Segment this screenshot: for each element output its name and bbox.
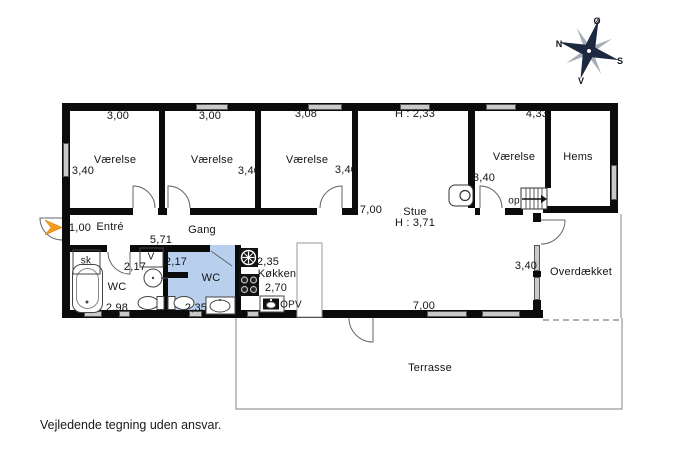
dim-badevaerelse-depth: 2,98 bbox=[106, 302, 128, 314]
door-vaerelse4-arc bbox=[480, 186, 502, 208]
room-label-vaerelse2: Værelse bbox=[191, 154, 233, 166]
dim-vaerelse2-width: 3,00 bbox=[199, 110, 221, 122]
room-label-overdaekket: Overdækket bbox=[550, 266, 612, 278]
room-label-vaerelse1: Værelse bbox=[94, 154, 136, 166]
dim-vaerelse4-width: 4,33 bbox=[526, 108, 548, 120]
room-label-vaerelse4: Værelse bbox=[493, 151, 535, 163]
dishwasher-label: OPV bbox=[280, 300, 302, 311]
compass-north-label: N bbox=[556, 39, 563, 49]
dim-vaerelse3-depth: 3,40 bbox=[335, 164, 357, 176]
room-label-terrasse: Terrasse bbox=[408, 362, 452, 374]
compass-rose: Ø N S V bbox=[543, 5, 635, 97]
room-label-vaerelse3: Værelse bbox=[286, 154, 328, 166]
compass-south-label: S bbox=[617, 56, 623, 66]
dim-stue-width-bottom: 7,00 bbox=[413, 300, 435, 312]
stairs-up-label: op bbox=[508, 196, 520, 207]
dim-vaerelse1-width: 3,00 bbox=[107, 110, 129, 122]
extractor-fan-icon bbox=[239, 248, 258, 267]
dim-vaerelse1-depth: 3,40 bbox=[72, 165, 94, 177]
room-label-gang: Gang bbox=[188, 224, 216, 236]
floor-plan: 3,00 Værelse 3,40 3,00 Værelse 3,40 3,08… bbox=[0, 0, 687, 457]
stairs-icon bbox=[521, 188, 547, 209]
dim-wc-width: 2,17 bbox=[165, 256, 187, 268]
room-label-badevaerelse: WC bbox=[108, 281, 127, 293]
dim-wc-depth: 2,35 bbox=[185, 302, 207, 314]
dim-badevaerelse-width: 2,17 bbox=[124, 261, 146, 273]
door-wc-leaf bbox=[211, 251, 232, 266]
dim-koekken-width: 2,35 bbox=[257, 256, 279, 268]
round-sink-icon bbox=[144, 269, 168, 287]
bathtub-icon bbox=[73, 265, 103, 313]
door-overdaekket-arc bbox=[541, 220, 565, 244]
dim-stue-low-ceiling: H : 2,33 bbox=[395, 108, 435, 120]
washer-label: V bbox=[148, 252, 155, 263]
dim-vaerelse2-depth: 3,40 bbox=[238, 165, 260, 177]
closet-label: sk bbox=[81, 256, 91, 267]
dim-overdaekket-depth: 3,40 bbox=[515, 260, 537, 272]
room-label-entre: Entré bbox=[96, 221, 123, 233]
dim-vaerelse3-width: 3,08 bbox=[295, 108, 317, 120]
wood-stove-icon bbox=[449, 185, 473, 206]
vanity-sink-icon bbox=[206, 297, 235, 314]
compass-west-label: V bbox=[578, 76, 584, 86]
dim-entre: 1,00 bbox=[69, 222, 91, 234]
compass-east-label: Ø bbox=[593, 16, 600, 26]
dim-stue-ceiling: H : 3,71 bbox=[395, 217, 435, 229]
door-terrasse-arc bbox=[349, 318, 373, 342]
entrance-arrow-icon bbox=[45, 220, 62, 235]
disclaimer-text: Vejledende tegning uden ansvar. bbox=[40, 418, 221, 432]
door-vaerelse1-arc bbox=[133, 186, 155, 208]
room-label-koekken: Køkken bbox=[258, 268, 297, 280]
dim-koekken-depth: 2,70 bbox=[265, 282, 287, 294]
door-vaerelse2-arc bbox=[168, 186, 190, 208]
stove-icon bbox=[239, 274, 259, 296]
toilet-icon bbox=[138, 297, 164, 310]
dim-stue-width: 7,00 bbox=[360, 204, 382, 216]
door-vaerelse3-arc bbox=[320, 186, 342, 208]
room-label-hems: Hems bbox=[563, 151, 593, 163]
dim-vaerelse4-depth: 3,40 bbox=[473, 172, 495, 184]
dim-gang-length: 5,71 bbox=[150, 234, 172, 246]
room-label-wc: WC bbox=[202, 272, 221, 284]
